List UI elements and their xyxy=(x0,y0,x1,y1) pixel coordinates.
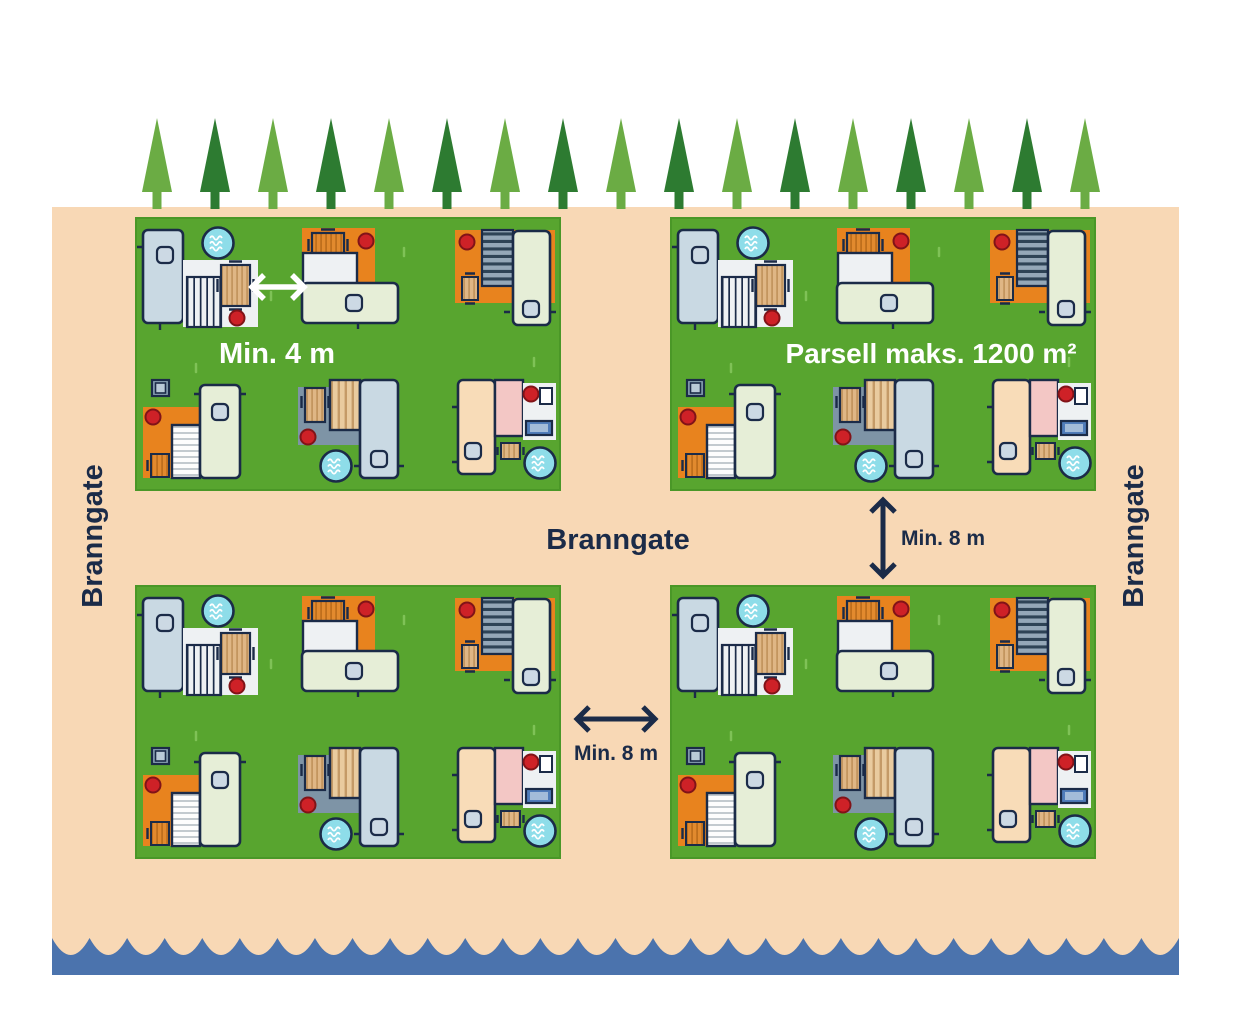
tree-icon xyxy=(548,118,578,209)
min-8m-vertical-label: Min. 8 m xyxy=(901,527,985,550)
tree-icon xyxy=(838,118,868,209)
tree-icon xyxy=(722,118,752,209)
tree-icon xyxy=(142,118,172,209)
fire-lane-left-label: Branngate xyxy=(77,464,109,607)
tree-row xyxy=(142,118,1100,209)
tree-icon xyxy=(1070,118,1100,209)
tree-icon xyxy=(374,118,404,209)
tree-icon xyxy=(954,118,984,209)
tree-icon xyxy=(316,118,346,209)
campsite-regulation-diagram: Min. 4 m Parsell maks. 1200 m² Branngate… xyxy=(0,0,1240,1015)
parcel-bottom-left xyxy=(136,586,560,858)
fire-lane-right-label: Branngate xyxy=(1118,464,1150,607)
diagram-canvas: Min. 4 m Parsell maks. 1200 m² Branngate… xyxy=(0,0,1240,1015)
tree-icon xyxy=(606,118,636,209)
parcel-top-left xyxy=(136,218,560,490)
min-4m-label: Min. 4 m xyxy=(219,338,335,370)
tree-icon xyxy=(432,118,462,209)
tree-icon xyxy=(1012,118,1042,209)
tree-icon xyxy=(896,118,926,209)
tree-icon xyxy=(200,118,230,209)
parcel-max-area-label: Parsell maks. 1200 m² xyxy=(785,338,1076,369)
tree-icon xyxy=(258,118,288,209)
tree-icon xyxy=(490,118,520,209)
parcel-bottom-right xyxy=(671,586,1095,858)
fire-lane-center-label: Branngate xyxy=(546,524,689,556)
tree-icon xyxy=(780,118,810,209)
tree-icon xyxy=(664,118,694,209)
min-8m-horizontal-label: Min. 8 m xyxy=(574,742,658,765)
